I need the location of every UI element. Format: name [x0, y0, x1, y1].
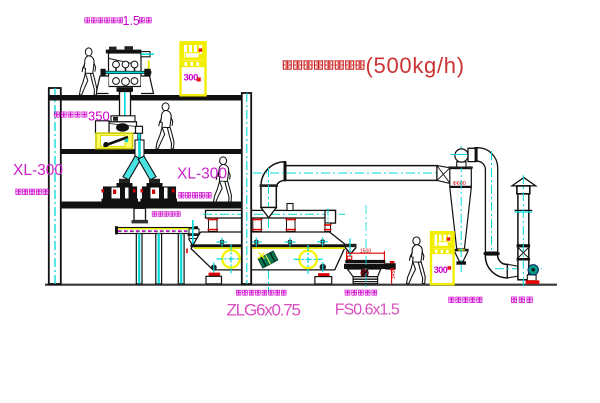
svg-text:XL-300: XL-300	[177, 166, 227, 183]
svg-text:300: 300	[184, 73, 199, 84]
svg-text:XL-300: XL-300	[13, 162, 63, 179]
svg-text:1.5: 1.5	[123, 14, 140, 28]
svg-text:ZLG6x0.75: ZLG6x0.75	[227, 300, 301, 319]
svg-text:FS0.6x1.5: FS0.6x1.5	[335, 302, 400, 319]
svg-text:300: 300	[434, 265, 448, 275]
svg-text:(500kg/h): (500kg/h)	[366, 53, 465, 78]
svg-text:350: 350	[88, 109, 110, 124]
svg-text:345: 345	[391, 270, 397, 279]
